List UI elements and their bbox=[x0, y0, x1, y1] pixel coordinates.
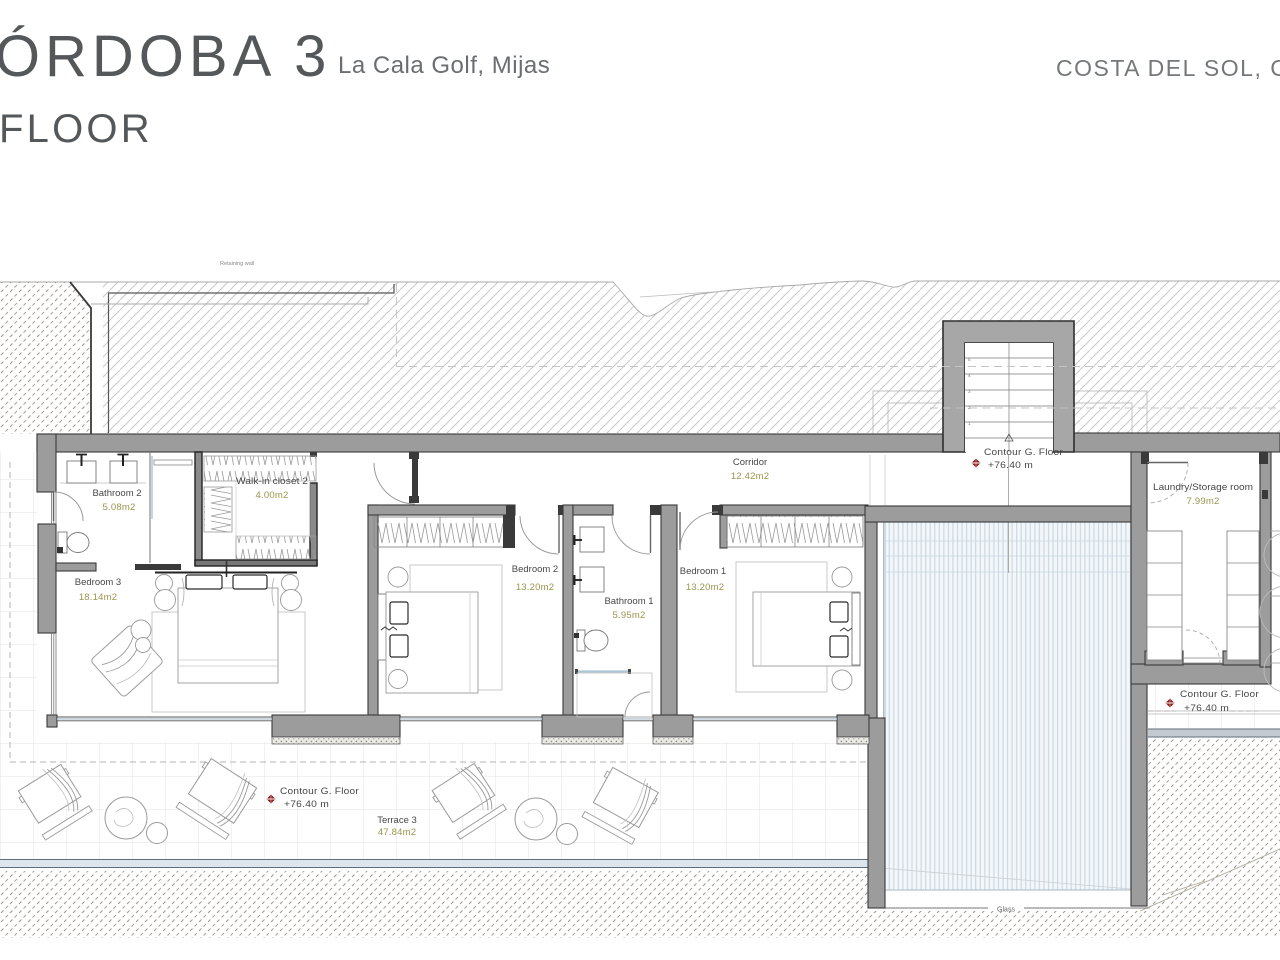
svg-text:Bathroom 2: Bathroom 2 bbox=[92, 488, 141, 499]
svg-text:7.99m2: 7.99m2 bbox=[1187, 496, 1220, 507]
svg-text:12.42m2: 12.42m2 bbox=[731, 471, 769, 482]
svg-text:47.84m2: 47.84m2 bbox=[378, 827, 416, 838]
svg-text:CÓRDOBA 3: CÓRDOBA 3 bbox=[0, 24, 331, 89]
svg-text:+76.40 m: +76.40 m bbox=[284, 799, 329, 809]
svg-text:18.14m2: 18.14m2 bbox=[79, 592, 117, 603]
svg-text:Laundry/Storage room: Laundry/Storage room bbox=[1153, 482, 1253, 493]
svg-text:5.08m2: 5.08m2 bbox=[103, 502, 136, 513]
svg-text:+76.40 m: +76.40 m bbox=[1184, 703, 1229, 713]
svg-text:Contour G. Floor: Contour G. Floor bbox=[280, 786, 359, 796]
svg-text:Contour G. Floor: Contour G. Floor bbox=[984, 447, 1063, 457]
svg-text:+76.40 m: +76.40 m bbox=[988, 460, 1033, 470]
svg-text:4.00m2: 4.00m2 bbox=[256, 490, 289, 501]
svg-text:FLOOR: FLOOR bbox=[0, 107, 153, 151]
svg-text:Bedroom 3: Bedroom 3 bbox=[75, 577, 121, 588]
svg-text:13.20m2: 13.20m2 bbox=[516, 582, 554, 593]
svg-text:Walk-in closet 2: Walk-in closet 2 bbox=[236, 476, 308, 487]
svg-text:Bedroom 1: Bedroom 1 bbox=[680, 566, 726, 577]
svg-text:La Cala Golf, Mijas: La Cala Golf, Mijas bbox=[338, 52, 550, 79]
svg-text:Retaining wall: Retaining wall bbox=[220, 261, 254, 267]
svg-text:Corridor: Corridor bbox=[733, 457, 767, 468]
svg-text:Bathroom 1: Bathroom 1 bbox=[604, 596, 653, 607]
svg-text:COSTA DEL SOL, CÓRDOBA: COSTA DEL SOL, CÓRDOBA bbox=[1056, 55, 1280, 81]
svg-text:5.95m2: 5.95m2 bbox=[613, 610, 646, 621]
svg-text:Terrace 3: Terrace 3 bbox=[377, 815, 417, 826]
svg-text:Contour G. Floor: Contour G. Floor bbox=[1180, 689, 1259, 699]
svg-text:Bedroom 2: Bedroom 2 bbox=[512, 564, 558, 575]
svg-text:Glass: Glass bbox=[997, 907, 1015, 914]
svg-text:13.20m2: 13.20m2 bbox=[686, 582, 724, 593]
